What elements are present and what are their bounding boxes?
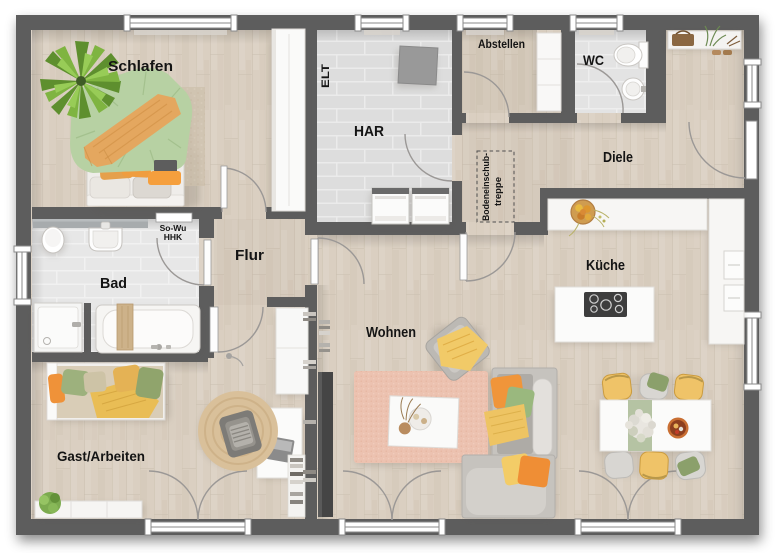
svg-text:Diele: Diele [603,149,633,166]
svg-text:HHK: HHK [164,232,183,242]
svg-text:ELT: ELT [320,64,332,88]
svg-text:Gast/Arbeiten: Gast/Arbeiten [57,448,145,464]
svg-text:Bad: Bad [100,275,127,292]
svg-text:Abstellen: Abstellen [478,39,525,51]
svg-text:Küche: Küche [586,257,625,274]
svg-text:treppe: treppe [493,177,503,206]
svg-text:WC: WC [583,52,604,68]
svg-text:HAR: HAR [354,123,384,140]
svg-text:Bodeneinschub-: Bodeneinschub- [481,153,491,221]
svg-text:Wohnen: Wohnen [366,324,416,341]
svg-text:Flur: Flur [235,247,264,264]
svg-text:Schlafen: Schlafen [108,58,173,75]
